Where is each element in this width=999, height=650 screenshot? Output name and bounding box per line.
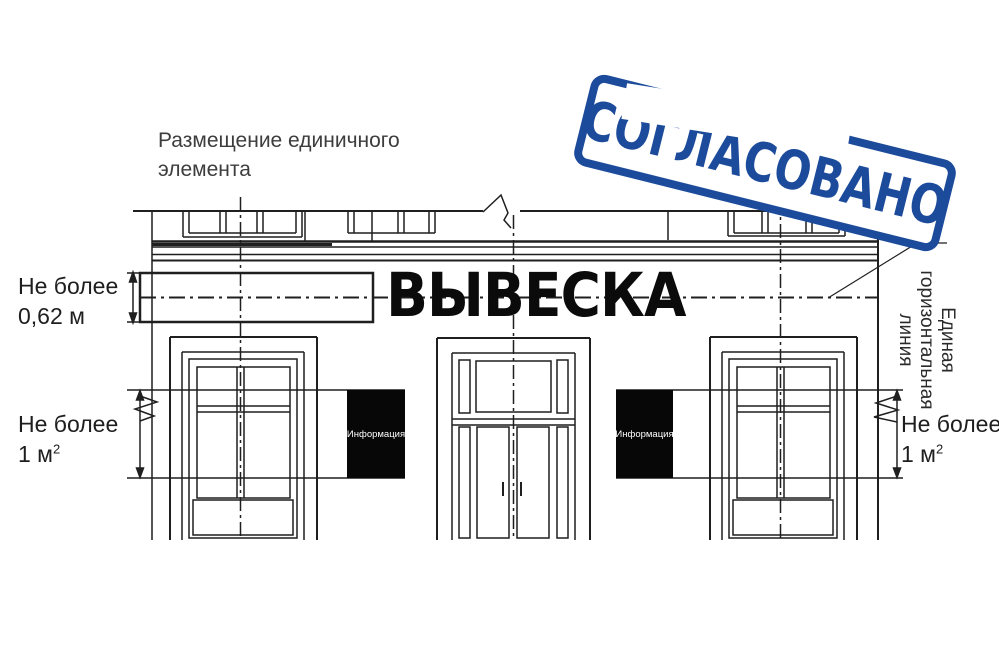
area-left-sup: 2	[53, 441, 60, 456]
info-box-right-label: Информация	[615, 429, 673, 440]
dimension-label-area-left: Не более 1 м2	[18, 410, 136, 470]
note-line-1: Единая	[937, 240, 958, 440]
note-line-2: горизонтальная	[916, 240, 937, 440]
horizontal-line-note: Единая горизонтальная линия	[895, 240, 958, 440]
dimension-label-height: Не более 0,62 м	[18, 272, 136, 332]
info-box-left-label: Информация	[347, 429, 405, 440]
sign-band-label: ВЫВЕСКА	[386, 266, 658, 326]
info-box-right: Информация	[616, 390, 673, 478]
area-right-sup: 2	[936, 441, 943, 456]
area-left-label: Не более	[18, 411, 118, 437]
info-box-left: Информация	[347, 390, 405, 478]
area-right-value: 1 м	[901, 441, 936, 467]
area-left-value: 1 м	[18, 441, 53, 467]
note-line-3: линия	[895, 240, 916, 440]
